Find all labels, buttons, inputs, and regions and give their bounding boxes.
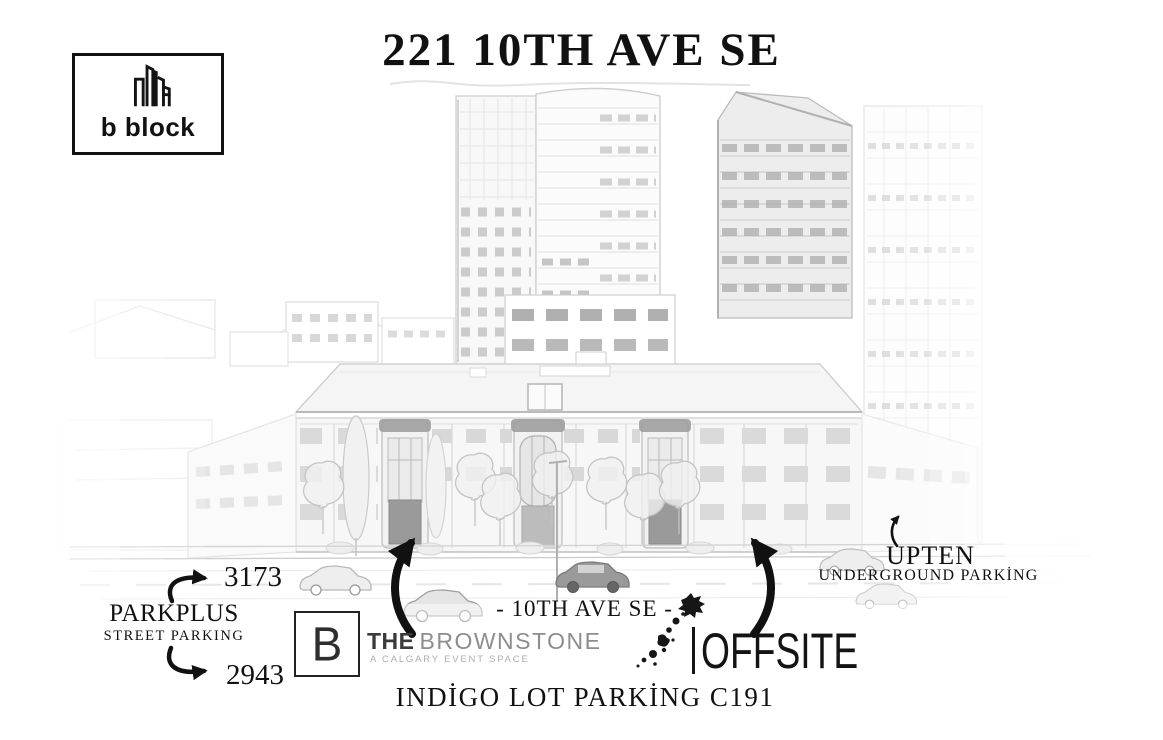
bblock-building-icon: [119, 56, 177, 114]
bblock-logo: b block: [72, 53, 224, 155]
brownstone-tagline: A CALGARY EVENT SPACE: [370, 654, 530, 665]
indigo-lot-label: INDİGO LOT PARKİNG C191: [330, 682, 840, 713]
parkplus-subtitle: STREET PARKING: [92, 628, 256, 645]
page-title: 221 10TH AVE SE: [285, 26, 878, 75]
parkplus-down-arrow-icon: [169, 648, 204, 672]
offsite-logo-bar: [692, 627, 695, 674]
offsite-wordmark: OFFSITE: [701, 627, 858, 677]
parkplus-zone-lower: 2943: [226, 659, 284, 692]
bblock-logo-label: b block: [101, 112, 196, 143]
parkplus-up-arrow-icon: [170, 577, 204, 601]
parkplus-title: PARKPLUS: [98, 600, 250, 628]
brownstone-name: BROWNSTONE: [420, 628, 602, 654]
upten-subtitle: UNDERGROUND PARKİNG: [806, 567, 1051, 585]
left-entrance-arrow-icon: [395, 543, 412, 634]
right-entrance-arrow-icon: [754, 543, 771, 634]
offsite-splatter-icon: [628, 588, 708, 678]
parking-map-flyer: b block 221 10TH AVE SE PARKPLUS STREET …: [0, 0, 1163, 740]
parkplus-zone-upper: 3173: [224, 561, 282, 594]
brownstone-logo-box: B: [294, 611, 360, 677]
brownstone-wordmark: THEBROWNSTONE: [367, 628, 601, 655]
brownstone-initial: B: [312, 616, 343, 672]
brownstone-prefix: THE: [367, 628, 415, 654]
